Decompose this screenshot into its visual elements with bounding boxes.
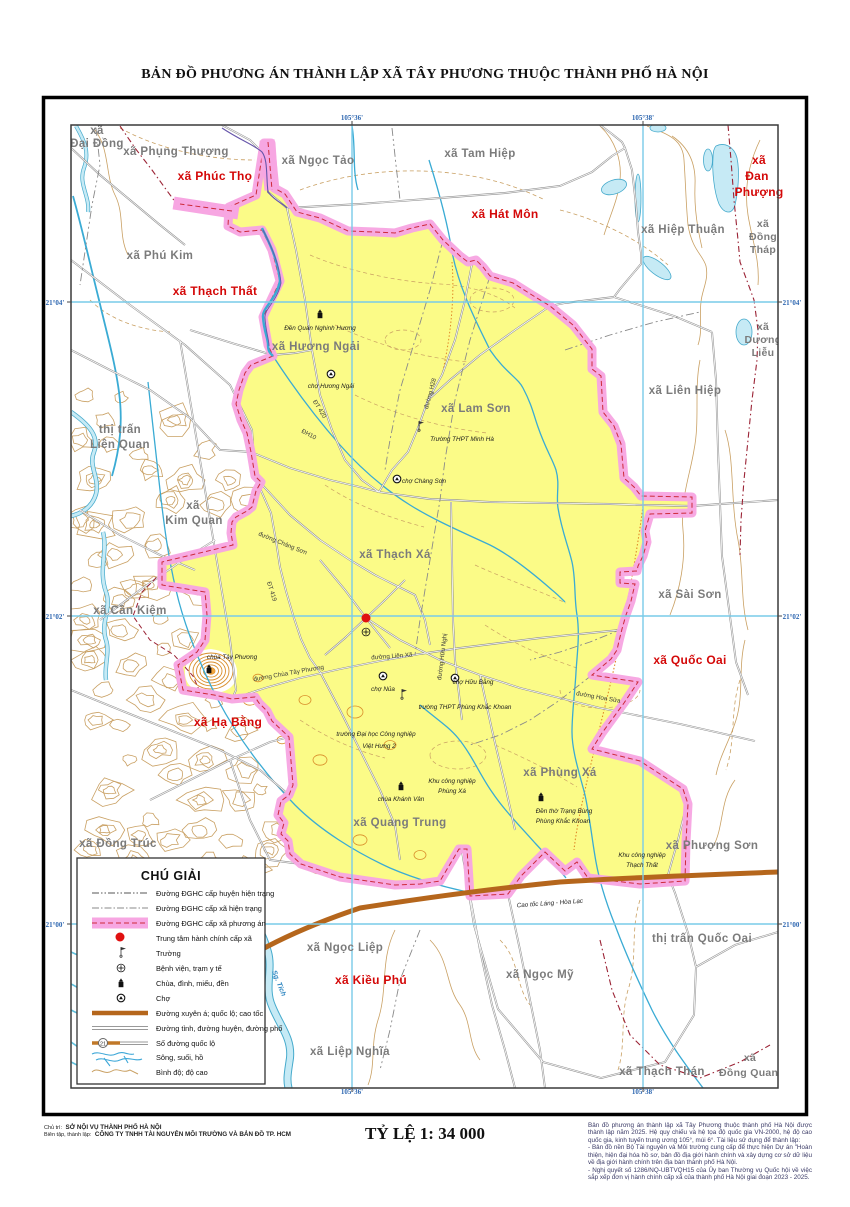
svg-text:105°38': 105°38'	[632, 114, 654, 122]
svg-text:Đan: Đan	[745, 169, 769, 183]
svg-text:xã Liên Hiệp: xã Liên Hiệp	[649, 385, 722, 397]
svg-text:Đường xuyên á; quốc lộ; cao tố: Đường xuyên á; quốc lộ; cao tốc	[156, 1009, 263, 1018]
svg-text:xã Hạ Bằng: xã Hạ Bằng	[194, 714, 262, 729]
svg-text:Phùng Khắc Khoan: Phùng Khắc Khoan	[536, 816, 591, 825]
svg-text:Khu công nghiệp: Khu công nghiệp	[428, 778, 476, 785]
svg-text:Sông, suối, hồ: Sông, suối, hồ	[156, 1053, 203, 1062]
svg-text:xã Quốc Oai: xã Quốc Oai	[653, 653, 726, 667]
svg-text:Đại Đồng: Đại Đồng	[70, 138, 124, 150]
svg-text:21°04': 21°04'	[783, 299, 802, 307]
svg-text:xã Thạch Xá: xã Thạch Xá	[359, 549, 431, 561]
svg-text:xã Hát Môn: xã Hát Môn	[471, 207, 538, 221]
svg-text:Đồng: Đồng	[749, 231, 777, 243]
svg-text:Chùa, đình, miếu, đền: Chùa, đình, miếu, đền	[156, 979, 229, 988]
svg-text:xã Ngọc Liệp: xã Ngọc Liệp	[307, 942, 383, 954]
svg-text:xã: xã	[744, 1052, 756, 1064]
svg-text:trường THPT Phùng Khắc Khoan: trường THPT Phùng Khắc Khoan	[419, 702, 512, 711]
svg-text:Tháp: Tháp	[750, 244, 776, 256]
svg-text:xã Hiệp Thuận: xã Hiệp Thuận	[641, 224, 725, 236]
svg-text:chùa Tây Phương: chùa Tây Phương	[207, 654, 258, 661]
svg-text:xã Ngọc Mỹ: xã Ngọc Mỹ	[506, 969, 574, 981]
svg-text:xã Phụng Thượng: xã Phụng Thượng	[123, 146, 229, 158]
svg-text:CHÚ GIẢI: CHÚ GIẢI	[141, 868, 201, 883]
svg-text:21°00': 21°00'	[46, 921, 65, 929]
svg-text:21: 21	[100, 1042, 106, 1048]
svg-text:xã: xã	[757, 218, 769, 230]
svg-text:xã Thạch Thất: xã Thạch Thất	[173, 284, 258, 298]
svg-text:21°04': 21°04'	[46, 299, 65, 307]
svg-text:Liễu: Liễu	[752, 346, 775, 359]
svg-text:Thạch Thất: Thạch Thất	[626, 861, 658, 869]
svg-text:xã Ngọc Tảo: xã Ngọc Tảo	[282, 155, 355, 167]
svg-text:Trung tâm hành chính cấp xã: Trung tâm hành chính cấp xã	[156, 934, 253, 943]
svg-text:xã Liệp Nghĩa: xã Liệp Nghĩa	[310, 1046, 390, 1058]
svg-text:Bình độ; độ cao: Bình độ; độ cao	[156, 1068, 208, 1077]
svg-text:xã Đồng Trúc: xã Đồng Trúc	[79, 838, 157, 850]
svg-text:Đường ĐGHC cấp xã hiện trạng: Đường ĐGHC cấp xã hiện trạng	[156, 904, 262, 913]
svg-text:xã: xã	[752, 153, 766, 167]
svg-text:Trường THPT Minh Hà: Trường THPT Minh Hà	[430, 436, 494, 443]
svg-text:xã: xã	[186, 500, 200, 512]
svg-text:Đường ĐGHC cấp xã phương án: Đường ĐGHC cấp xã phương án	[156, 919, 266, 928]
svg-text:Đền thờ Trạng Bùng: Đền thờ Trạng Bùng	[536, 806, 593, 815]
svg-text:Đền Quán Nghinh Hương: Đền Quán Nghinh Hương	[284, 323, 356, 332]
svg-text:trường Đại học Công nghiệp: trường Đại học Công nghiệp	[336, 731, 416, 738]
svg-text:chùa Khánh Vân: chùa Khánh Vân	[378, 796, 425, 803]
svg-text:Việt Hưng 2: Việt Hưng 2	[362, 743, 396, 750]
svg-text:xã Hương Ngải: xã Hương Ngải	[272, 341, 360, 353]
svg-text:21°00': 21°00'	[783, 921, 802, 929]
svg-text:Kim Quan: Kim Quan	[165, 515, 223, 527]
svg-text:xã Thạch Thán: xã Thạch Thán	[619, 1066, 705, 1078]
svg-text:chợ Hữu Bằng: chợ Hữu Bằng	[453, 677, 494, 686]
svg-text:105°36': 105°36'	[341, 114, 363, 122]
svg-text:chợ Nủa: chợ Nủa	[371, 685, 395, 693]
svg-text:Phượng: Phượng	[734, 185, 783, 199]
svg-text:xã Kiều Phú: xã Kiều Phú	[335, 973, 407, 987]
svg-text:Đường tỉnh, đường huyện, đường: Đường tỉnh, đường huyện, đường phố	[156, 1024, 282, 1033]
svg-text:Số đường quốc lộ: Số đường quốc lộ	[156, 1039, 215, 1048]
svg-text:xã Phúc Thọ: xã Phúc Thọ	[178, 169, 253, 183]
svg-text:chợ Chàng Sơn: chợ Chàng Sơn	[402, 478, 447, 485]
svg-text:xã Phượng Sơn: xã Phượng Sơn	[666, 840, 759, 852]
svg-text:xã: xã	[757, 321, 769, 333]
svg-text:Đồng Quang: Đồng Quang	[719, 1067, 785, 1079]
svg-text:thị trấn: thị trấn	[99, 424, 141, 436]
svg-text:xã Lam Sơn: xã Lam Sơn	[441, 403, 511, 415]
svg-text:chợ Hương Ngải: chợ Hương Ngải	[308, 382, 355, 390]
svg-text:Trường: Trường	[156, 949, 181, 958]
svg-text:Đường ĐGHC cấp huyện hiện trạn: Đường ĐGHC cấp huyện hiện trạng	[156, 889, 274, 898]
svg-text:xã Sài Sơn: xã Sài Sơn	[658, 589, 721, 601]
svg-text:xã Tam Hiệp: xã Tam Hiệp	[444, 148, 515, 160]
svg-text:21°02': 21°02'	[46, 613, 65, 621]
svg-text:thị trấn Quốc Oai: thị trấn Quốc Oai	[652, 933, 752, 945]
svg-text:Chợ: Chợ	[156, 994, 170, 1003]
svg-text:xã Phùng Xá: xã Phùng Xá	[523, 767, 597, 779]
svg-text:Dương: Dương	[745, 334, 782, 346]
svg-text:Phùng Xá: Phùng Xá	[438, 788, 466, 795]
svg-text:xã Cần Kiệm: xã Cần Kiệm	[93, 605, 166, 617]
svg-text:Khu công nghiệp: Khu công nghiệp	[618, 852, 666, 859]
svg-text:Bệnh viện, trạm y tế: Bệnh viện, trạm y tế	[156, 964, 222, 973]
svg-text:xã Phú Kim: xã Phú Kim	[127, 250, 194, 262]
svg-text:Liên Quan: Liên Quan	[90, 439, 150, 451]
svg-text:xã: xã	[90, 125, 104, 137]
svg-text:21°02': 21°02'	[783, 613, 802, 621]
svg-text:xã Quang Trung: xã Quang Trung	[353, 817, 446, 829]
